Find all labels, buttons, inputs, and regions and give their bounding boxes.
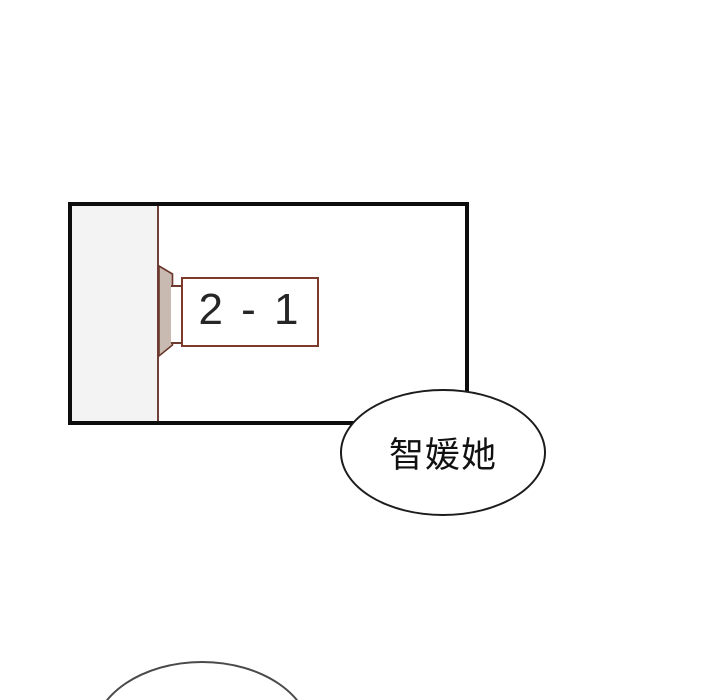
wall-section [72, 206, 159, 421]
page-background: 2 - 1 智媛她 [0, 0, 720, 700]
speech-bubble: 智媛她 [340, 389, 546, 516]
door-sign-label: 2 - 1 [198, 288, 301, 336]
speech-bubble-text: 智媛她 [389, 432, 497, 473]
door-sign: 2 - 1 [181, 277, 319, 347]
speech-bubble-partial [92, 661, 312, 700]
